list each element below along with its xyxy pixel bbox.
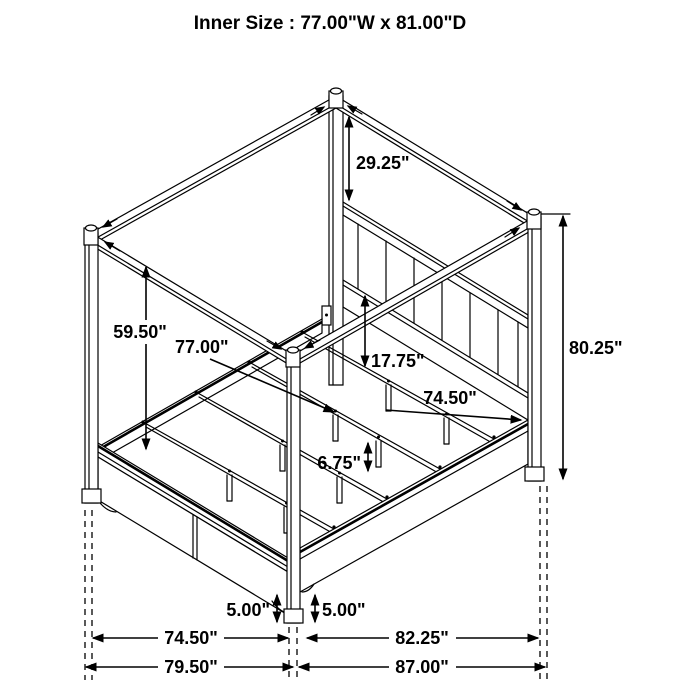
dim-width-overall: 79.50" [86,657,293,677]
post-left [82,233,101,503]
post-right [525,217,544,481]
dim-label: 79.50" [164,657,218,677]
dim-label: 59.50" [113,322,167,342]
footboard [98,443,293,618]
dim-label: 17.75" [371,351,425,371]
dim-label: 80.25" [569,338,623,358]
dim-depth-frame: 82.25" [307,628,538,648]
dim-label: 5.00" [226,600,270,620]
dim-label: 74.50" [164,628,218,648]
dim-label: 29.25" [356,153,410,173]
dim-width-frame: 74.50" [93,628,288,648]
dim-label: 82.25" [395,628,449,648]
dim-clearance-right: 5.00" [315,595,366,622]
right-side-rail [300,420,528,592]
dim-label: 87.00" [395,657,449,677]
inner-size-ticks [103,106,521,349]
canopy-bed-drawing: Inner Size : 77.00"W x 81.00"D [0,0,700,700]
dim-label: 5.00" [322,600,366,620]
dim-label: 6.75" [317,453,361,473]
page-title: Inner Size : 77.00"W x 81.00"D [194,13,467,34]
dim-center-leg: 6.75" [317,443,368,473]
dim-clearance-left: 5.00" [226,595,277,622]
dim-label: 74.50" [423,388,477,408]
furniture-dimension-diagram: Inner Size : 77.00"W x 81.00"D [0,0,700,700]
dim-depth-overall: 87.00" [299,657,545,677]
dim-overall-height: 80.25" [541,214,623,479]
dim-label: 77.00" [175,337,229,357]
